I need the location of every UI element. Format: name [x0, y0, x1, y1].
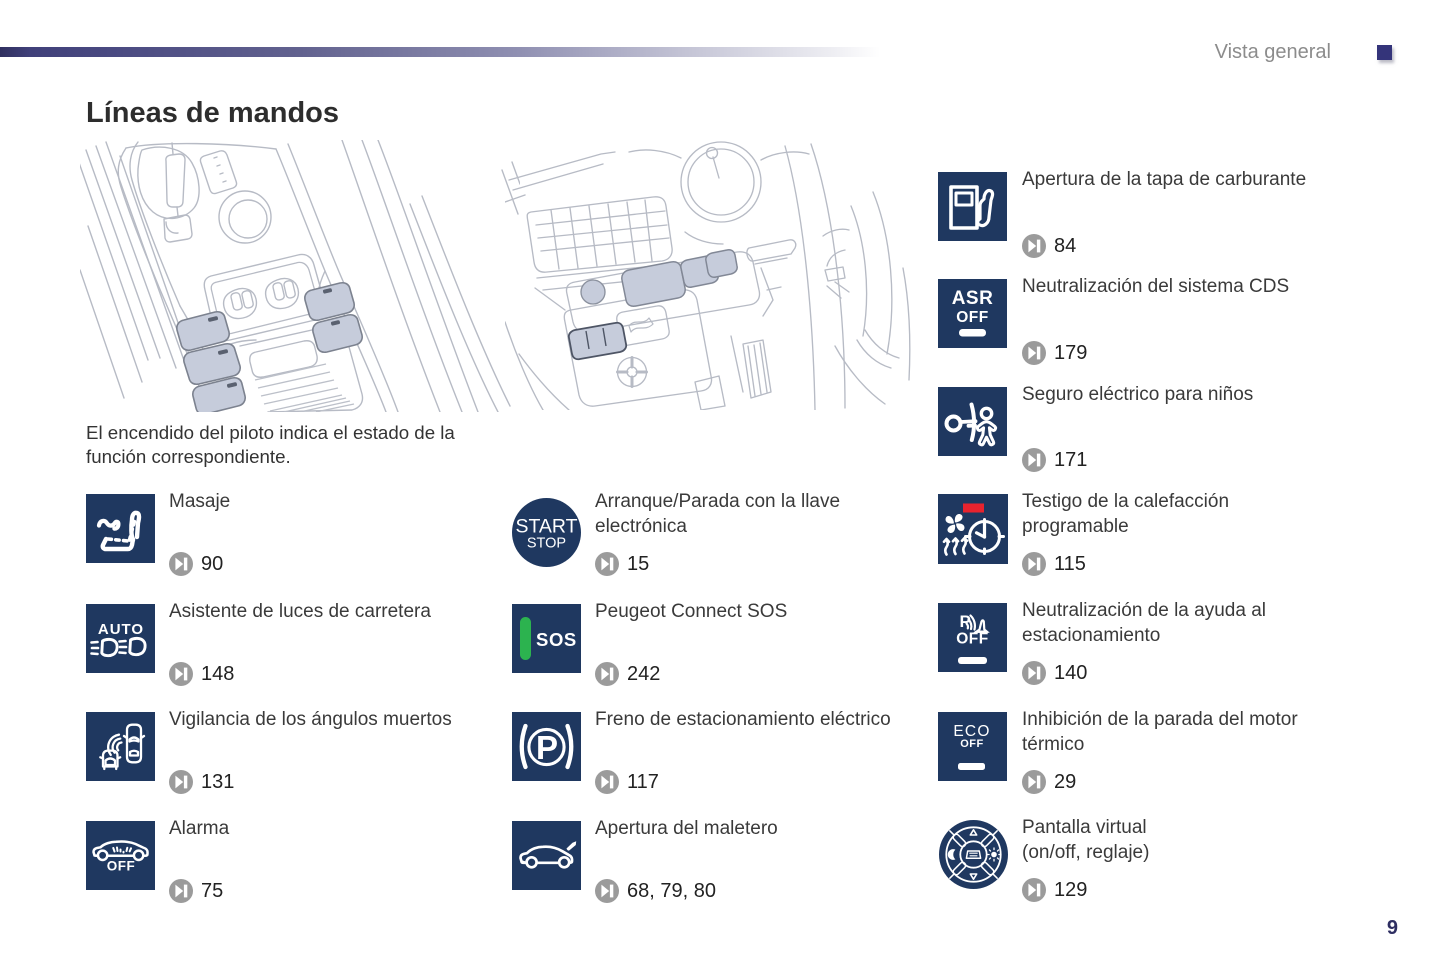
svg-text:OFF: OFF: [107, 859, 136, 874]
svg-text:SOS: SOS: [536, 629, 577, 650]
svg-text:OFF: OFF: [960, 738, 984, 750]
svg-text:P: P: [536, 729, 558, 766]
svg-text:ASR: ASR: [952, 288, 994, 309]
svg-text:STOP: STOP: [527, 536, 566, 552]
svg-text:START: START: [515, 516, 577, 538]
svg-text:OFF: OFF: [956, 631, 989, 648]
svg-text:AUTO: AUTO: [98, 621, 144, 638]
svg-text:OFF: OFF: [956, 309, 989, 326]
